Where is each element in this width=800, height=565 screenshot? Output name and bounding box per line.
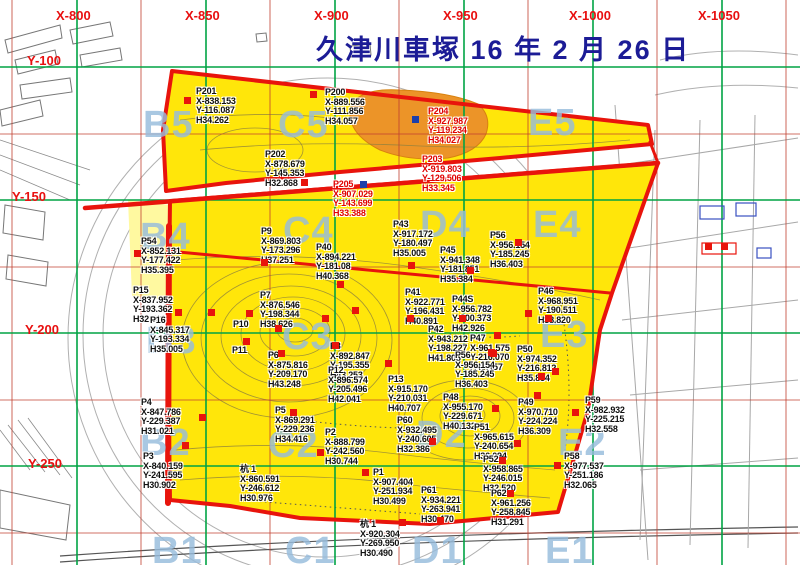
survey-point-marker xyxy=(246,310,253,317)
survey-point-marker xyxy=(554,462,561,469)
grid-x-label: X-950 xyxy=(443,8,478,23)
survey-point-marker xyxy=(545,315,552,322)
survey-point-label: P200 X-889.556 Y-111.856 H34.057 xyxy=(325,88,365,126)
grid-x-label: X-800 xyxy=(56,8,91,23)
survey-point-label: P7 X-876.546 Y-198.344 H38.626 xyxy=(260,291,300,329)
survey-point-marker xyxy=(408,262,415,269)
grid-x-label: X-900 xyxy=(314,8,349,23)
survey-point-marker xyxy=(134,250,141,257)
survey-point-marker xyxy=(525,310,532,317)
survey-point-marker xyxy=(332,342,339,349)
survey-point-marker xyxy=(385,360,392,367)
survey-point-label: P1 X-907.404 Y-251.934 H30.499 xyxy=(373,468,413,506)
survey-point-label: P58 X-977.537 Y-251.186 H32.065 xyxy=(564,452,604,490)
grid-x-label: X-1050 xyxy=(698,8,740,23)
survey-point-label: P13 X-915.170 Y-210.031 H40.707 xyxy=(388,375,428,413)
survey-point-label: P10 xyxy=(233,320,248,330)
survey-point-label: P56 X-956.154 Y-185.245 H36.403 xyxy=(490,231,530,269)
survey-point-label: P45 X-941.348 Y-181.851 H35.384 xyxy=(440,246,480,284)
zone-label-c5: C5 xyxy=(278,106,329,144)
grid-x-label: X-1000 xyxy=(569,8,611,23)
survey-point-marker xyxy=(534,392,541,399)
survey-point-marker xyxy=(721,243,728,250)
survey-point-marker xyxy=(278,350,285,357)
survey-point-label: P49 X-970.710 Y-224.224 H36.309 xyxy=(518,398,558,436)
grid-y-label: Y-150 xyxy=(12,189,46,204)
survey-point-marker xyxy=(352,307,359,314)
survey-point-marker xyxy=(492,405,499,412)
grid-y-label: Y-250 xyxy=(28,456,62,471)
survey-point-marker xyxy=(184,97,191,104)
survey-point-label: P54 X-852.131 Y-177.422 H35.395 xyxy=(141,237,181,275)
survey-point-marker xyxy=(437,517,444,524)
survey-point-marker xyxy=(362,469,369,476)
survey-point-label: P4 X-847.786 Y-229.387 H31.021 xyxy=(141,398,181,436)
survey-point-marker xyxy=(538,373,545,380)
grid-x-label: X-850 xyxy=(185,8,220,23)
survey-point-label: P204 X-927.987 Y-119.234 H34.027 xyxy=(428,107,468,145)
survey-point-label: P46 X-968.951 Y-190.511 H38.820 xyxy=(538,287,578,325)
survey-point-marker xyxy=(360,181,367,188)
grid-y-label: Y-200 xyxy=(25,322,59,337)
zone-label-c1: C1 xyxy=(285,532,336,565)
grid-y-label: Y-100 xyxy=(27,53,61,68)
overlay-layer: 久津川車塚 16 年 2 月 26 日 X-800X-850X-900X-950… xyxy=(0,0,800,565)
survey-point-marker xyxy=(310,91,317,98)
survey-point-marker xyxy=(243,338,250,345)
survey-point-label: P202 X-878.679 Y-145.353 H32.868 xyxy=(265,150,305,188)
survey-point-marker xyxy=(208,309,215,316)
survey-point-marker xyxy=(499,457,506,464)
survey-point-marker xyxy=(514,440,521,447)
survey-point-label: 杭 1 X-860.591 Y-246.612 H30.976 xyxy=(240,465,280,503)
survey-point-label: P50 X-974.352 Y-216.812 H35.854 xyxy=(517,345,557,383)
survey-point-marker xyxy=(199,414,206,421)
survey-point-marker xyxy=(490,350,497,357)
survey-point-label: P3 X-840.159 Y-241.595 H30.902 xyxy=(143,452,183,490)
survey-point-marker xyxy=(399,519,406,526)
survey-point-label: P43 X-917.172 Y-180.497 H35.005 xyxy=(393,220,433,258)
zone-label-e4: E4 xyxy=(533,206,581,244)
survey-point-label: P12 X-896.574 Y-205.496 H42.041 xyxy=(328,366,368,404)
survey-point-marker xyxy=(705,243,712,250)
zone-label-e5: E5 xyxy=(528,104,576,142)
survey-point-marker xyxy=(429,438,436,445)
survey-point-label: P6 X-875.816 Y-209.170 H43.248 xyxy=(268,351,308,389)
survey-point-marker xyxy=(175,309,182,316)
map-canvas: 久津川車塚 16 年 2 月 26 日 X-800X-850X-900X-950… xyxy=(0,0,800,565)
survey-point-marker xyxy=(552,368,559,375)
survey-point-label: P40 X-894.221 Y-181.08 H40.368 xyxy=(316,243,356,281)
survey-point-marker xyxy=(407,315,414,322)
survey-point-marker xyxy=(317,449,324,456)
survey-point-label: P201 X-838.153 Y-116.087 H34.262 xyxy=(196,87,236,125)
survey-point-marker xyxy=(494,332,501,339)
survey-point-marker xyxy=(301,179,308,186)
survey-point-label: P16 X-845.317 Y-193.334 H35.005 xyxy=(150,316,190,354)
survey-point-marker xyxy=(275,325,282,332)
zone-label-d1: D1 xyxy=(412,532,463,565)
survey-point-label: P2 X-888.799 Y-242.560 H30.744 xyxy=(325,428,365,466)
survey-point-label: P60 X-932.495 Y-240.605 H32.386 xyxy=(397,416,437,454)
survey-point-label: P59 X-982.932 Y-225.215 H32.558 xyxy=(585,396,625,434)
zone-label-b1: B1 xyxy=(152,532,203,565)
survey-point-label: P11 xyxy=(232,346,247,356)
survey-point-marker xyxy=(459,315,466,322)
map-title: 久津川車塚 16 年 2 月 26 日 xyxy=(316,28,690,67)
zone-label-b5: B5 xyxy=(143,106,194,144)
survey-point-marker xyxy=(412,116,419,123)
survey-point-marker xyxy=(467,267,474,274)
survey-point-marker xyxy=(515,239,522,246)
survey-point-marker xyxy=(322,315,329,322)
survey-point-marker xyxy=(261,259,268,266)
survey-point-label: P56 X-956.154 Y-185.245 H36.403 xyxy=(455,351,495,389)
survey-point-marker xyxy=(572,409,579,416)
survey-point-label: P203 X-919.803 Y-129.506 H33.345 xyxy=(422,155,462,193)
survey-point-marker xyxy=(337,281,344,288)
survey-point-marker xyxy=(507,490,514,497)
survey-point-marker xyxy=(182,442,189,449)
survey-point-marker xyxy=(290,409,297,416)
zone-label-e1: E1 xyxy=(545,532,593,565)
survey-point-label: 杭 1 X-920.304 Y-269.950 H30.490 xyxy=(360,520,400,558)
